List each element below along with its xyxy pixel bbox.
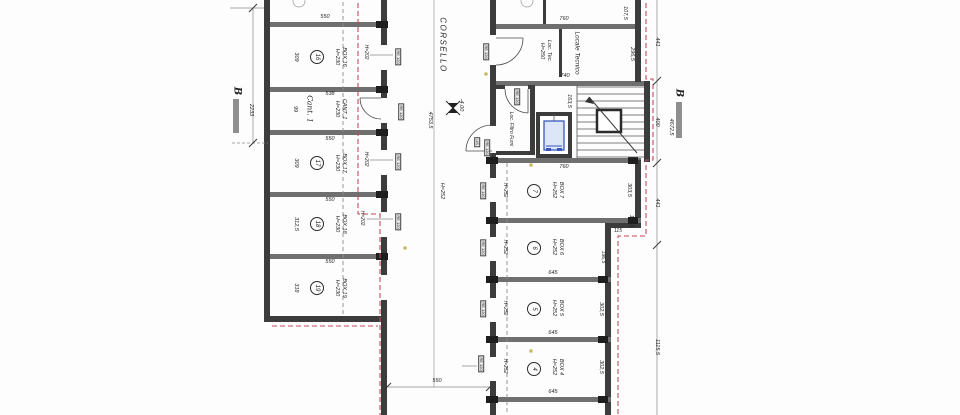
room-name: BOX 17 [340,153,347,172]
dim-label: 441 [654,198,660,207]
room-height: H=230 [333,101,340,117]
fire-compartment-lines [272,0,653,415]
room-height: H=252 [550,239,557,255]
room-label-box16: BOX 16H=230 [333,47,347,66]
room-name: BOX 6 [557,239,564,255]
dim-label: 400 [654,117,660,126]
level-label: -4.00 [458,99,464,112]
beam-label: H=202 [363,45,369,60]
beam-label: H=252 [502,240,508,255]
room-label-box19: BOX 19H=230 [333,278,347,297]
right-wing-walls [486,0,650,415]
section-bar-right [676,102,682,138]
fire-door-label: RE 120 [484,139,490,156]
room-number-text: 5 [531,307,537,310]
fire-door-label: RE 120 [395,213,401,230]
dim-label: 196,5 [600,251,606,264]
room-number-text: 6 [531,246,537,249]
dim-label: 99 [292,106,298,112]
dim-label: 312,5 [293,217,299,231]
dim-label: 645 [548,330,557,336]
dim-label: 303,5 [626,183,632,197]
room-height: H=230 [333,49,340,65]
room-height: H=252 [550,359,557,375]
dim-label: 302,5 [598,302,604,316]
room-name: Loc. Tec. [545,40,552,62]
section-marker-left: B [232,87,243,95]
room-label-box6: BOX 6H=252 [550,239,564,255]
room-number-box18: 18 [310,217,324,231]
room-number-box6: 6 [527,241,541,255]
dim-label: 302,5 [598,360,604,374]
room-label-box4: BOX 4H=252 [550,359,564,375]
section-marker-right: B [674,89,685,97]
floor-plan-canvas: 550 538 550 550 550 550 760 740 760 645 … [0,0,960,415]
exit-label: US [474,137,480,147]
dim-label: 760 [559,16,568,22]
staircase [577,85,644,158]
room-number-text: 18 [314,221,320,228]
left-wing-walls [264,0,388,415]
room-number-box19: 19 [310,281,324,295]
room-height: H=252 [550,182,557,198]
room-number-box16: 16 [310,50,324,64]
dim-label: 1115,5 [654,339,660,355]
dim-label: 318 [293,283,299,292]
dim-label: 309 [293,52,299,61]
room-label-box17: BOX 17H=230 [333,153,347,172]
dim-label: 645 [548,389,557,395]
room-name: BOX 7 [557,182,564,198]
loc-tec-door [496,38,523,65]
height-label: H=252 [439,183,445,199]
room-number-text: 19 [314,285,320,292]
cut-room-circle [293,0,305,7]
fire-door-label: RE 120 [398,103,404,120]
room-name: BOX 4 [557,359,564,375]
room-height: H=252 [550,300,557,316]
beam-label: H=202 [363,152,369,167]
cut-room-circle [521,0,533,7]
room-label-loc-tec: Loc. Tec.H=250 [538,40,552,62]
beam-lines [343,0,507,415]
dim-label: 550 [325,197,334,203]
room-name: BOX 18 [340,214,347,233]
fire-door-label: RE 120 [478,355,484,372]
dim-label: 538 [325,91,334,97]
dim-label: 107,5 [622,6,628,20]
dim-label: 550 [325,259,334,265]
fire-door-label: RE 120 [483,43,489,60]
plan-linework [0,0,960,415]
room-label-cant1: CANT. 1H=230 [333,99,347,120]
room-label-box18: BOX 18H=230 [333,214,347,233]
room-height: H=230 [333,280,340,296]
room-label-cant1-script: Cant. 1 [306,95,315,123]
room-number-text: 4 [531,367,537,370]
dim-label: 2233 [248,104,254,116]
fire-door-label: RE 120 [480,239,486,256]
dim-label: 296,5 [629,47,635,61]
dim-label: 550 [432,378,441,384]
dim-label: 441 [654,37,660,46]
dim-label: 309 [293,158,299,167]
fire-door-label: RE 120 [395,153,401,170]
dim-label: 115 [614,228,622,234]
room-number-box17: 17 [310,156,324,170]
corridor-label: CORSELLO [439,17,448,73]
room-label-filtro-fumi: Loc. Filtro Fumi [508,112,514,146]
room-name: BOX 19 [340,278,347,297]
room-number-box5: 5 [527,302,541,316]
dim-label: 105,5 [628,215,634,228]
room-label-locale-tecnico: Locale Tecnico [574,31,581,74]
fire-door-label: RE 120 [395,48,401,65]
beam-label: H=202 [359,211,365,226]
fire-door-label: RE 120 [480,300,486,317]
beam-label: H=252 [502,359,508,374]
fire-door-label: RE 120 [514,88,520,105]
room-number-text: 16 [314,54,320,61]
beam-label: H=252 [502,301,508,316]
elevator [538,114,570,156]
dim-label: 550 [325,136,334,142]
cant1-door [360,98,381,119]
room-name: BOX 5 [557,300,564,316]
beam-label: H=252 [502,183,508,198]
fire-door-label: RE 120 [480,182,486,199]
dim-label: 550 [320,14,329,20]
room-name: CANT. 1 [340,99,347,120]
room-number-box7: 7 [527,184,541,198]
room-label-box7: BOX 7H=252 [550,182,564,198]
dim-label: 760 [559,164,568,170]
dim-label: 4753,5 [427,112,433,129]
room-label-box5: BOX 5H=252 [550,300,564,316]
section-bar-left [233,99,239,133]
dim-label: 4672,5 [668,119,674,136]
dim-label: 645 [548,270,557,276]
room-number-box4: 4 [527,362,541,376]
room-height: H=230 [333,216,340,232]
room-height: H=250 [538,43,545,59]
room-height: H=230 [333,155,340,171]
dim-label: 163,5 [566,94,572,108]
room-name: BOX 16 [340,47,347,66]
room-number-text: 17 [314,160,320,167]
room-number-text: 7 [531,189,537,192]
dim-label: 740 [560,73,569,79]
